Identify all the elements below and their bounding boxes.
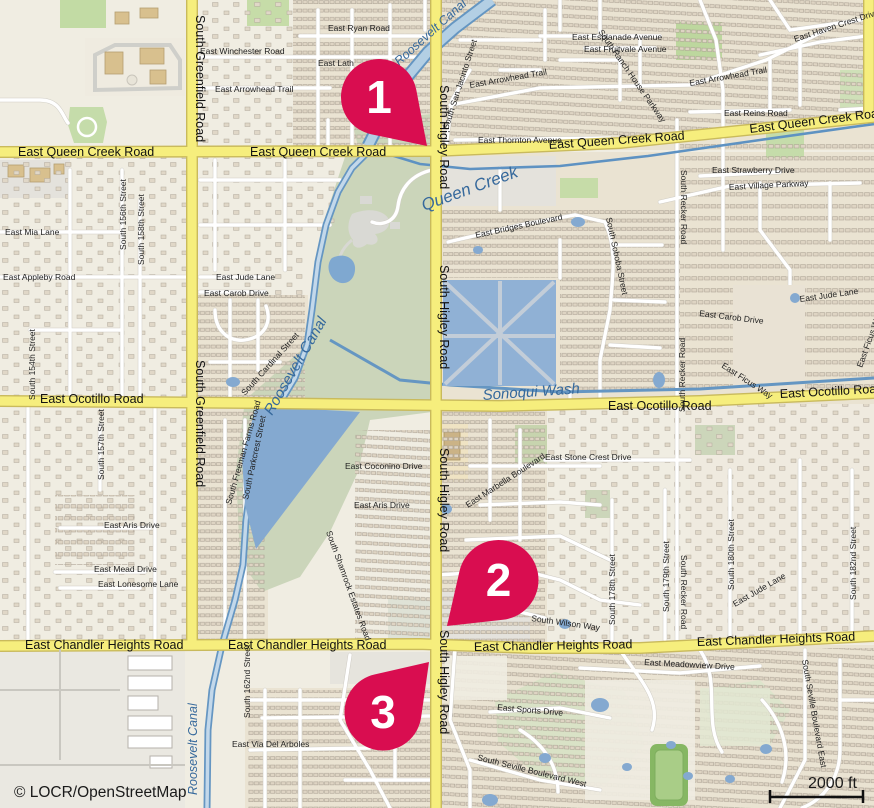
svg-text:East Mia Lane: East Mia Lane [5, 227, 60, 237]
svg-text:South 158th Street: South 158th Street [136, 193, 146, 265]
svg-text:South Recker Road: South Recker Road [677, 338, 687, 412]
svg-text:East Coconino Drive: East Coconino Drive [345, 461, 423, 471]
svg-text:South Higley Road: South Higley Road [437, 630, 451, 734]
svg-text:South Higley Road: South Higley Road [437, 448, 451, 552]
svg-text:East Chandler Heights Road: East Chandler Heights Road [474, 637, 633, 654]
svg-text:East Queen Creek Road: East Queen Creek Road [250, 145, 386, 159]
svg-text:East Fruitvale Avenue: East Fruitvale Avenue [584, 44, 667, 54]
svg-text:2000 ft: 2000 ft [808, 775, 857, 792]
svg-text:East Aris Drive: East Aris Drive [354, 500, 410, 510]
svg-text:East Esplanade Avenue: East Esplanade Avenue [572, 32, 662, 42]
svg-text:East Stone Crest Drive: East Stone Crest Drive [545, 452, 632, 462]
svg-text:East Aris Drive: East Aris Drive [104, 520, 160, 530]
svg-text:South Greenfield Road: South Greenfield Road [193, 15, 207, 142]
svg-text:South 182nd Street: South 182nd Street [848, 526, 858, 600]
svg-text:East Arrowhead Trail: East Arrowhead Trail [215, 84, 294, 94]
svg-text:East Strawberry Drive: East Strawberry Drive [712, 165, 795, 175]
svg-text:South Recker Road: South Recker Road [679, 555, 689, 629]
svg-text:South 178th Street: South 178th Street [607, 553, 617, 625]
svg-text:South 154th Street: South 154th Street [27, 328, 37, 400]
svg-text:South 180th Street: South 180th Street [726, 518, 736, 590]
svg-text:South Higley Road: South Higley Road [437, 265, 451, 369]
svg-text:Roosevelt Canal: Roosevelt Canal [186, 702, 200, 795]
svg-text:South 157th Street: South 157th Street [96, 408, 106, 480]
svg-text:South Greenfield Road: South Greenfield Road [193, 360, 207, 487]
svg-text:East Ryan Road: East Ryan Road [328, 23, 390, 33]
svg-text:East Appleby Road: East Appleby Road [3, 272, 76, 282]
svg-text:East Lonesome Lane: East Lonesome Lane [98, 579, 179, 589]
svg-text:East Mead Drive: East Mead Drive [94, 564, 157, 574]
svg-text:3: 3 [370, 686, 396, 738]
svg-text:South Recker Road: South Recker Road [679, 170, 689, 244]
svg-text:East Reins Road: East Reins Road [724, 108, 788, 118]
svg-text:2: 2 [486, 554, 512, 606]
svg-text:East Lath: East Lath [318, 58, 354, 68]
svg-text:South 162nd Street: South 162nd Street [242, 644, 252, 718]
svg-text:South 156th Street: South 156th Street [118, 178, 128, 250]
svg-text:East Ocotillo Road: East Ocotillo Road [40, 392, 144, 406]
svg-text:© LOCR/OpenStreetMap: © LOCR/OpenStreetMap [14, 784, 187, 801]
svg-text:East Jude Lane: East Jude Lane [216, 272, 275, 282]
svg-text:South 179th Street: South 179th Street [661, 540, 671, 612]
svg-text:East Chandler Heights Road: East Chandler Heights Road [25, 638, 183, 652]
svg-text:East Thornton Avenue: East Thornton Avenue [478, 135, 562, 145]
svg-text:East Carob Drive: East Carob Drive [204, 288, 269, 298]
svg-text:1: 1 [366, 71, 392, 123]
svg-text:East Via Del Arboles: East Via Del Arboles [232, 739, 309, 749]
svg-text:East Ocotillo Road: East Ocotillo Road [608, 399, 712, 413]
svg-text:East Winchester Road: East Winchester Road [200, 46, 285, 56]
svg-text:East Queen Creek Road: East Queen Creek Road [18, 145, 154, 159]
